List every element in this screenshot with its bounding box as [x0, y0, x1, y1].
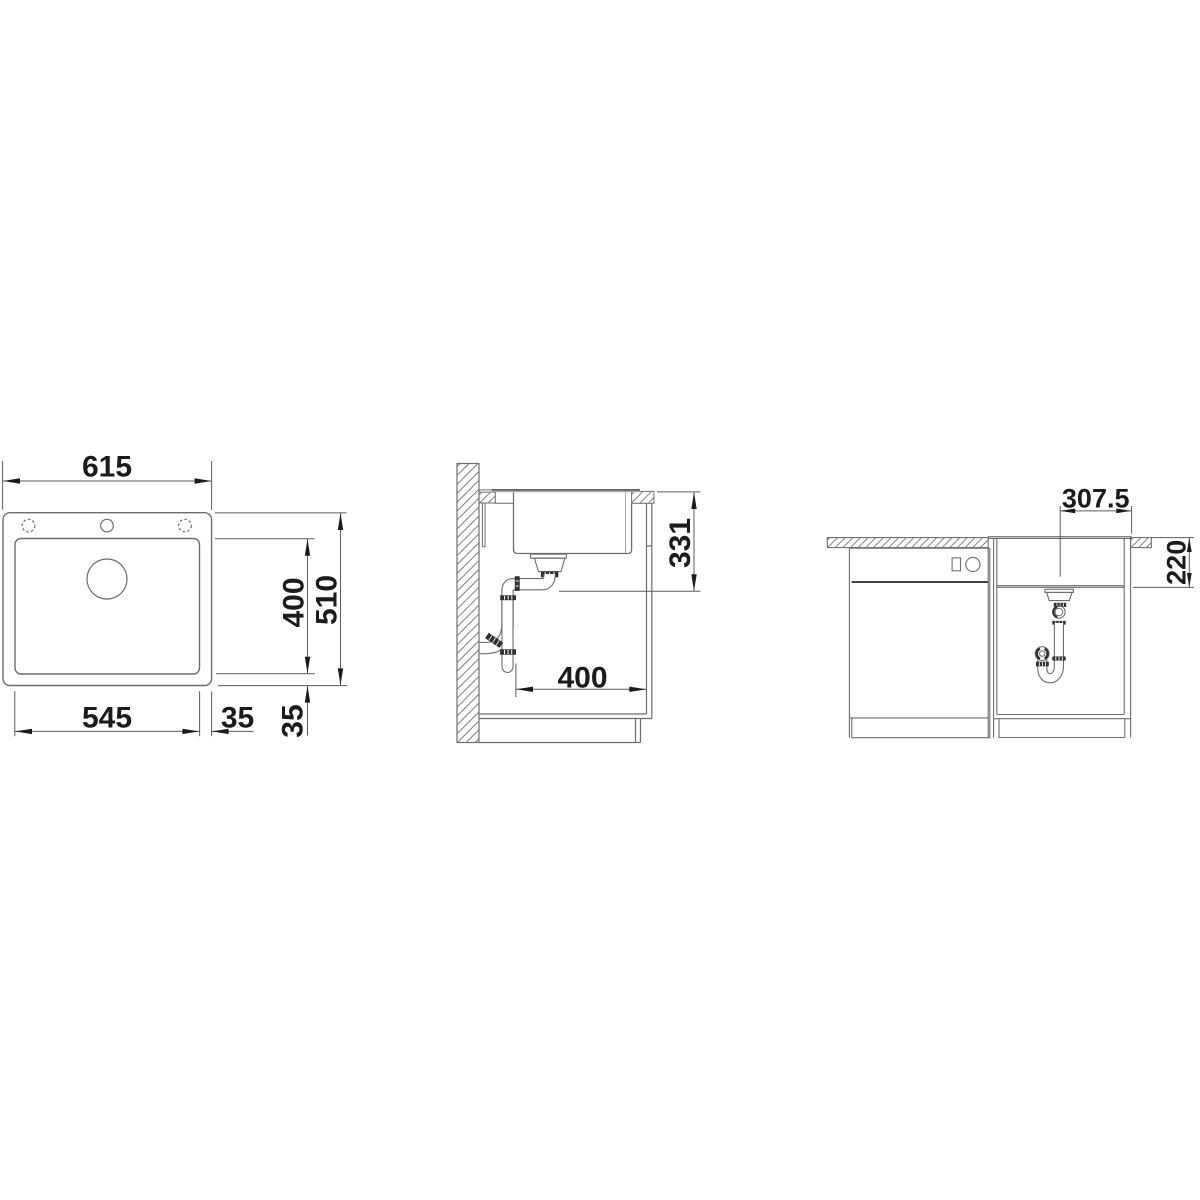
svg-text:400: 400 — [278, 577, 311, 627]
svg-text:307.5: 307.5 — [1062, 484, 1130, 514]
svg-text:510: 510 — [311, 575, 344, 625]
svg-text:35: 35 — [221, 702, 254, 735]
svg-text:615: 615 — [82, 451, 132, 484]
svg-text:545: 545 — [82, 702, 132, 735]
svg-text:331: 331 — [664, 518, 697, 568]
svg-text:220: 220 — [1162, 540, 1192, 585]
svg-text:400: 400 — [557, 662, 607, 695]
svg-text:35: 35 — [277, 704, 310, 737]
